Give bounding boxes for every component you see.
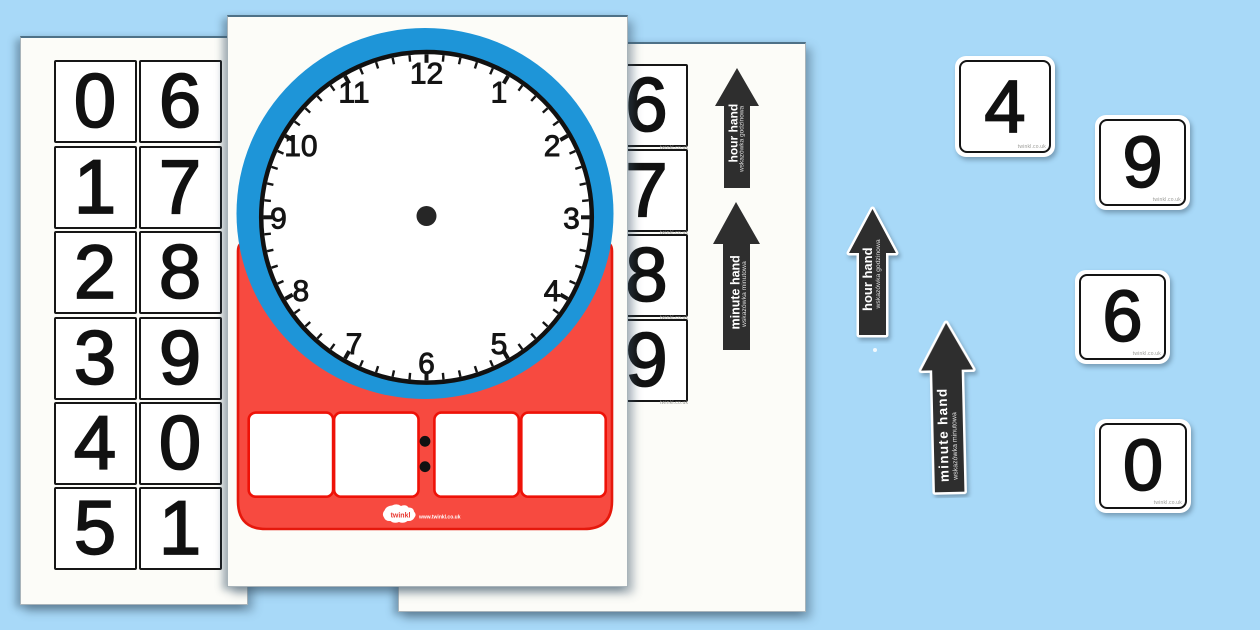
- svg-text:6: 6: [418, 347, 435, 380]
- svg-text:wskazówka godzinowa: wskazówka godzinowa: [875, 239, 882, 309]
- svg-text:7: 7: [345, 327, 362, 360]
- svg-text:twinkl: twinkl: [390, 512, 410, 519]
- svg-text:2: 2: [543, 129, 560, 162]
- svg-text:9: 9: [270, 202, 287, 235]
- svg-text:12: 12: [409, 57, 442, 90]
- svg-text:4: 4: [543, 274, 560, 307]
- svg-text:wskazówka godzinowa: wskazówka godzinowa: [738, 105, 745, 173]
- svg-text:10: 10: [284, 129, 317, 162]
- svg-text:8: 8: [292, 274, 309, 307]
- svg-text:3: 3: [563, 202, 580, 235]
- svg-text:1: 1: [490, 76, 507, 109]
- svg-text:5: 5: [490, 327, 507, 360]
- svg-text:11: 11: [338, 76, 369, 109]
- svg-text:wskazówka minutowa: wskazówka minutowa: [741, 261, 748, 328]
- svg-text:minute hand: minute hand: [935, 387, 952, 482]
- svg-text:www.twinkl.co.uk: www.twinkl.co.uk: [418, 514, 461, 520]
- svg-text:hour hand: hour hand: [860, 247, 875, 311]
